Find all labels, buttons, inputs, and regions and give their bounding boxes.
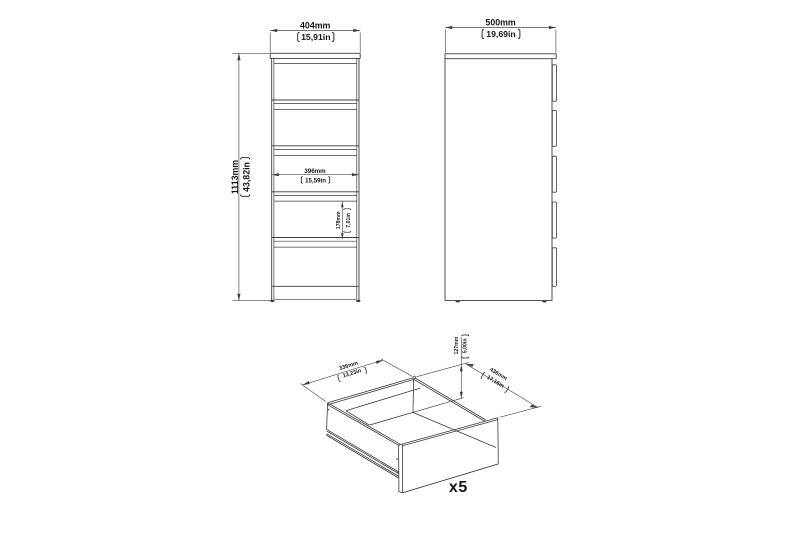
svg-text:1113mm: 1113mm — [230, 160, 240, 194]
svg-text:500mm: 500mm — [485, 18, 515, 28]
svg-text:43,82in: 43,82in — [242, 162, 252, 192]
svg-text:396mm: 396mm — [304, 168, 326, 175]
svg-text:15,91in: 15,91in — [301, 32, 330, 42]
svg-text:5,00in: 5,00in — [462, 338, 468, 353]
svg-text:404mm: 404mm — [300, 21, 330, 31]
svg-text:19,69in: 19,69in — [486, 29, 515, 39]
svg-text:7,01in: 7,01in — [346, 213, 352, 228]
svg-text:15,59in: 15,59in — [305, 178, 326, 185]
svg-text:x5: x5 — [449, 479, 468, 496]
svg-text:178mm: 178mm — [336, 211, 342, 229]
svg-text:127mm: 127mm — [454, 336, 460, 354]
